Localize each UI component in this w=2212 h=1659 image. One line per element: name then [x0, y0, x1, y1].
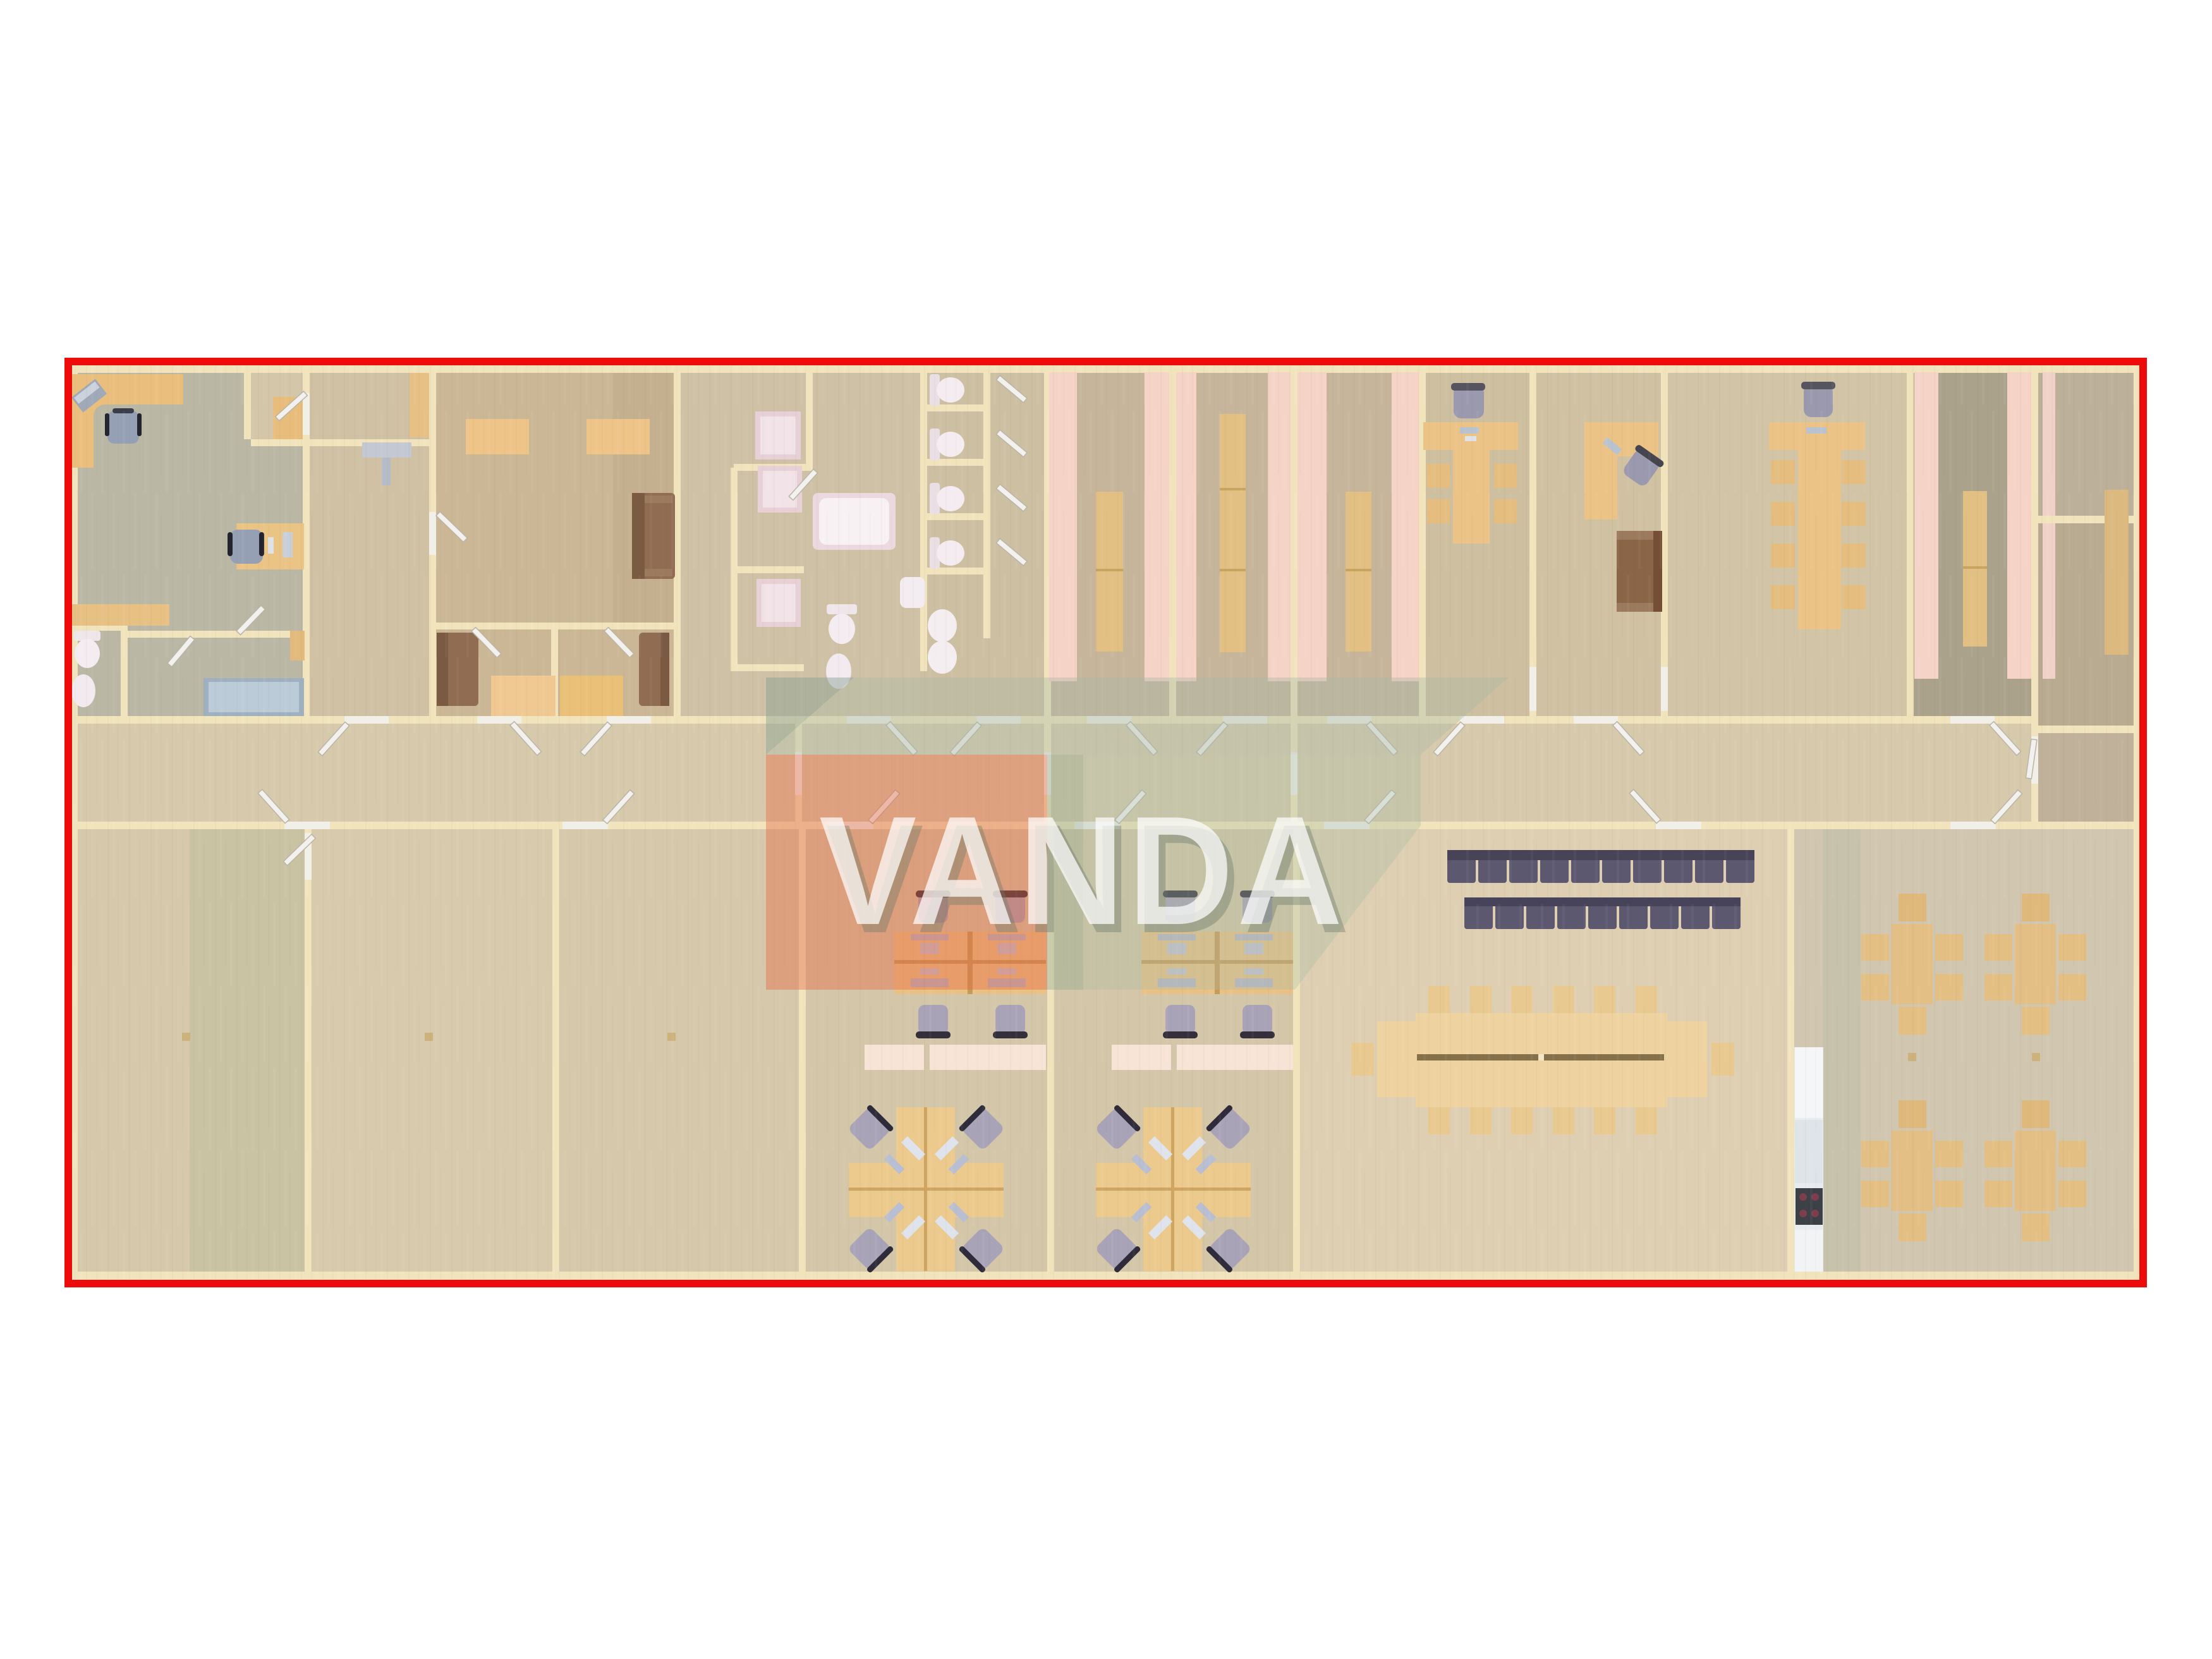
svg-text:VANDA: VANDA [819, 784, 1346, 957]
